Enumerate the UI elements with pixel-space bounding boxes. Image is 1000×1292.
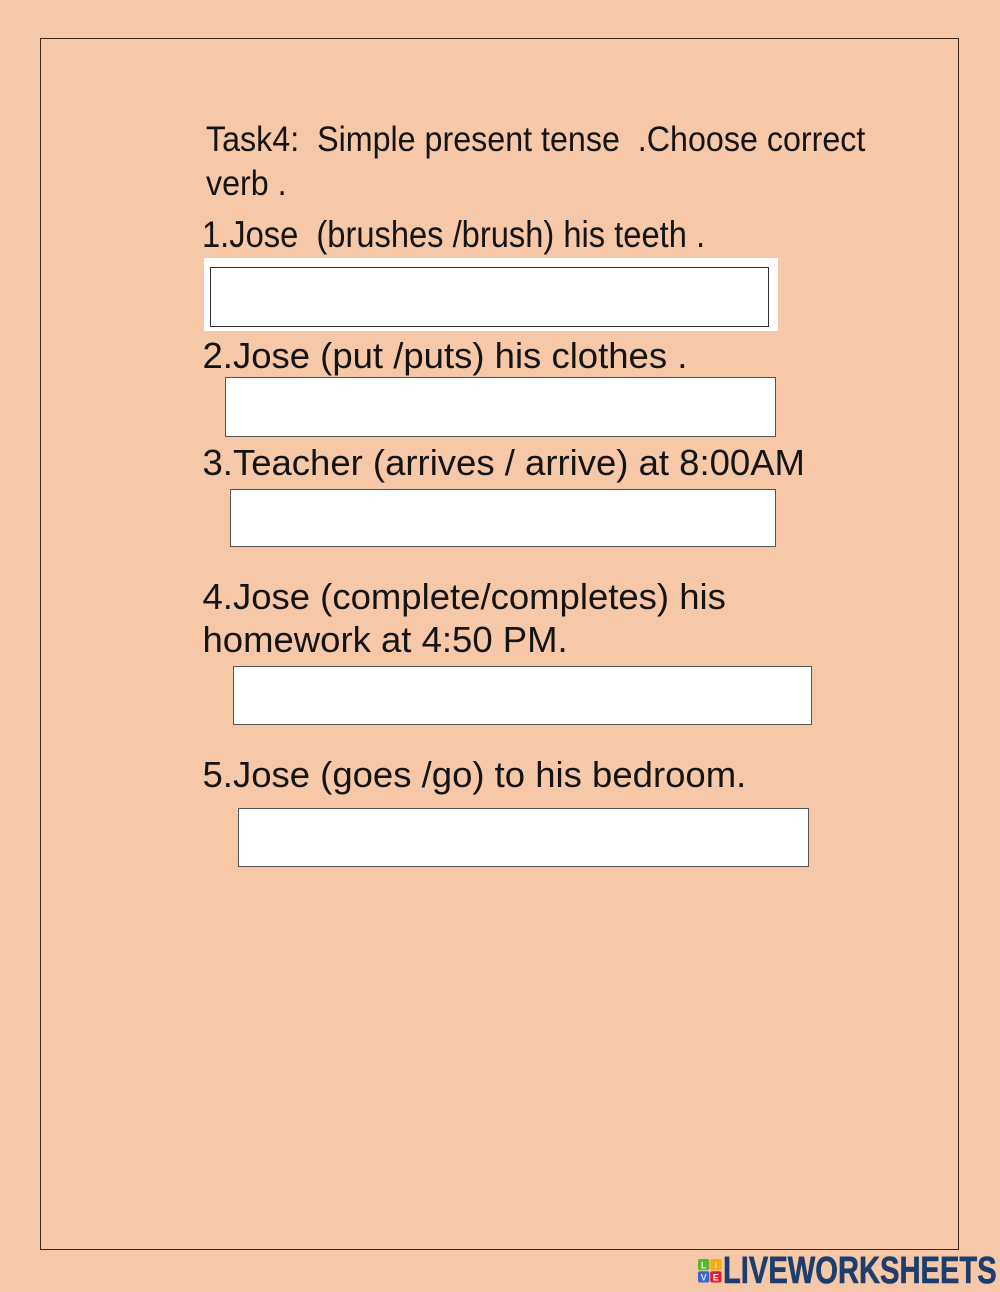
svg-text:L: L: [701, 1260, 707, 1270]
svg-text:V: V: [701, 1272, 707, 1282]
svg-text:I: I: [715, 1260, 718, 1270]
svg-text:E: E: [713, 1272, 719, 1282]
